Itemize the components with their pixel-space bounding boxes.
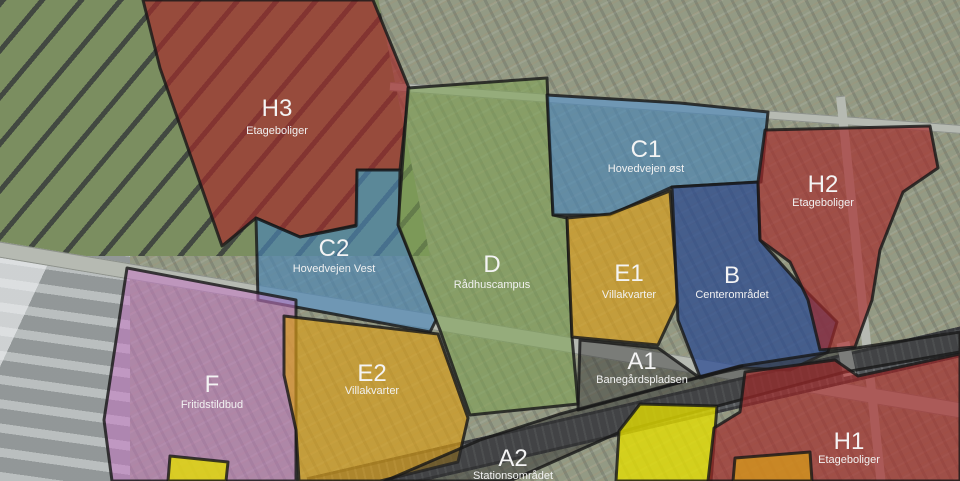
zone-orange-south[interactable] <box>733 452 812 481</box>
zone-f-code: F <box>205 371 220 398</box>
zone-h3-label: Etageboliger <box>246 125 308 137</box>
zone-h2-label: Etageboliger <box>792 197 854 209</box>
zone-e2-code: E2 <box>357 360 386 387</box>
zone-b-label: Centerområdet <box>695 289 768 301</box>
zone-a2-code: A2 <box>498 445 527 472</box>
zoning-map: H3EtageboligerC2Hovedvejen VestDRådhusca… <box>0 0 960 481</box>
zone-h2-code: H2 <box>808 171 839 198</box>
zone-yellow-station[interactable] <box>616 404 717 481</box>
zone-h1-code: H1 <box>834 428 865 455</box>
zone-yellow-west[interactable] <box>168 456 228 481</box>
zone-b-code: B <box>724 262 740 289</box>
zone-f[interactable] <box>104 268 296 481</box>
zone-e1-label: Villakvarter <box>602 289 657 301</box>
zone-f-label: Fritidstildbud <box>181 399 243 411</box>
zone-h1-label: Etageboliger <box>818 454 880 466</box>
zone-e2-label: Villakvarter <box>345 385 400 397</box>
zone-d-code: D <box>483 251 500 278</box>
zone-c1-code: C1 <box>631 136 662 163</box>
zone-d-label: Rådhuscampus <box>454 279 531 291</box>
zone-h3-code: H3 <box>262 95 293 122</box>
zone-overlay: H3EtageboligerC2Hovedvejen VestDRådhusca… <box>0 0 960 481</box>
zone-a2-label: Stationsområdet <box>473 470 553 481</box>
zone-a1-code: A1 <box>627 348 656 375</box>
zone-e1-code: E1 <box>614 260 643 287</box>
zone-c1-label: Hovedvejen øst <box>608 163 684 175</box>
zone-a1-label: Banegårdspladsen <box>596 374 688 386</box>
zone-c2-code: C2 <box>319 235 350 262</box>
zone-c2-label: Hovedvejen Vest <box>293 263 376 275</box>
